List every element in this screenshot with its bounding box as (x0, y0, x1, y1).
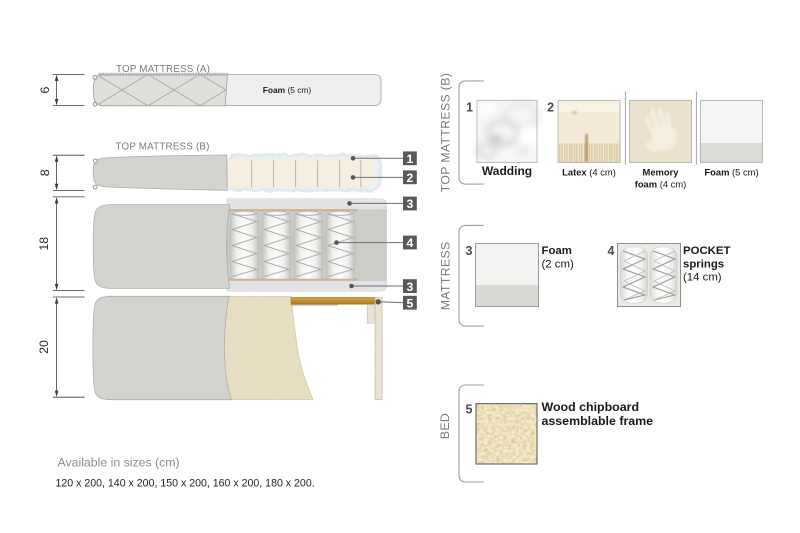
svg-text:TOP MATTRESS (B): TOP MATTRESS (B) (116, 142, 210, 153)
svg-text:20: 20 (37, 340, 51, 354)
svg-text:assemblable frame: assemblable frame (542, 414, 654, 428)
svg-text:6: 6 (38, 86, 52, 93)
svg-text:TOP MATTRESS (B): TOP MATTRESS (B) (439, 73, 453, 192)
svg-text:springs: springs (683, 258, 724, 270)
svg-text:Foam (5 cm): Foam (5 cm) (263, 85, 312, 95)
svg-text:18: 18 (37, 237, 51, 251)
svg-text:Foam: Foam (542, 245, 572, 257)
svg-text:(14 cm): (14 cm) (683, 272, 722, 284)
svg-text:8: 8 (38, 169, 52, 176)
svg-text:3: 3 (407, 280, 414, 294)
svg-text:4: 4 (608, 244, 615, 258)
svg-text:3: 3 (407, 197, 414, 211)
svg-text:MATTRESS: MATTRESS (439, 241, 453, 310)
svg-text:POCKET: POCKET (683, 245, 731, 257)
svg-text:120 x 200, 140 x 200, 150 x 20: 120 x 200, 140 x 200, 150 x 200, 160 x 2… (56, 477, 315, 489)
svg-text:BED: BED (438, 413, 452, 439)
svg-text:1: 1 (407, 152, 414, 166)
svg-text:Available in sizes (cm): Available in sizes (cm) (58, 455, 180, 469)
svg-text:3: 3 (466, 244, 473, 258)
svg-text:foam (4 cm): foam (4 cm) (635, 178, 687, 189)
svg-text:Wood chipboard: Wood chipboard (542, 400, 640, 414)
svg-text:1: 1 (466, 100, 473, 114)
svg-text:4: 4 (407, 236, 414, 250)
svg-text:Wadding: Wadding (482, 164, 532, 178)
svg-text:Memory: Memory (643, 166, 680, 177)
svg-text:5: 5 (407, 296, 414, 310)
svg-text:Latex (4 cm): Latex (4 cm) (562, 166, 616, 177)
svg-text:5: 5 (466, 403, 473, 417)
svg-text:2: 2 (547, 100, 554, 114)
svg-text:2: 2 (407, 171, 414, 185)
svg-text:Foam (5 cm): Foam (5 cm) (704, 166, 758, 177)
svg-text:(2 cm): (2 cm) (542, 258, 574, 270)
